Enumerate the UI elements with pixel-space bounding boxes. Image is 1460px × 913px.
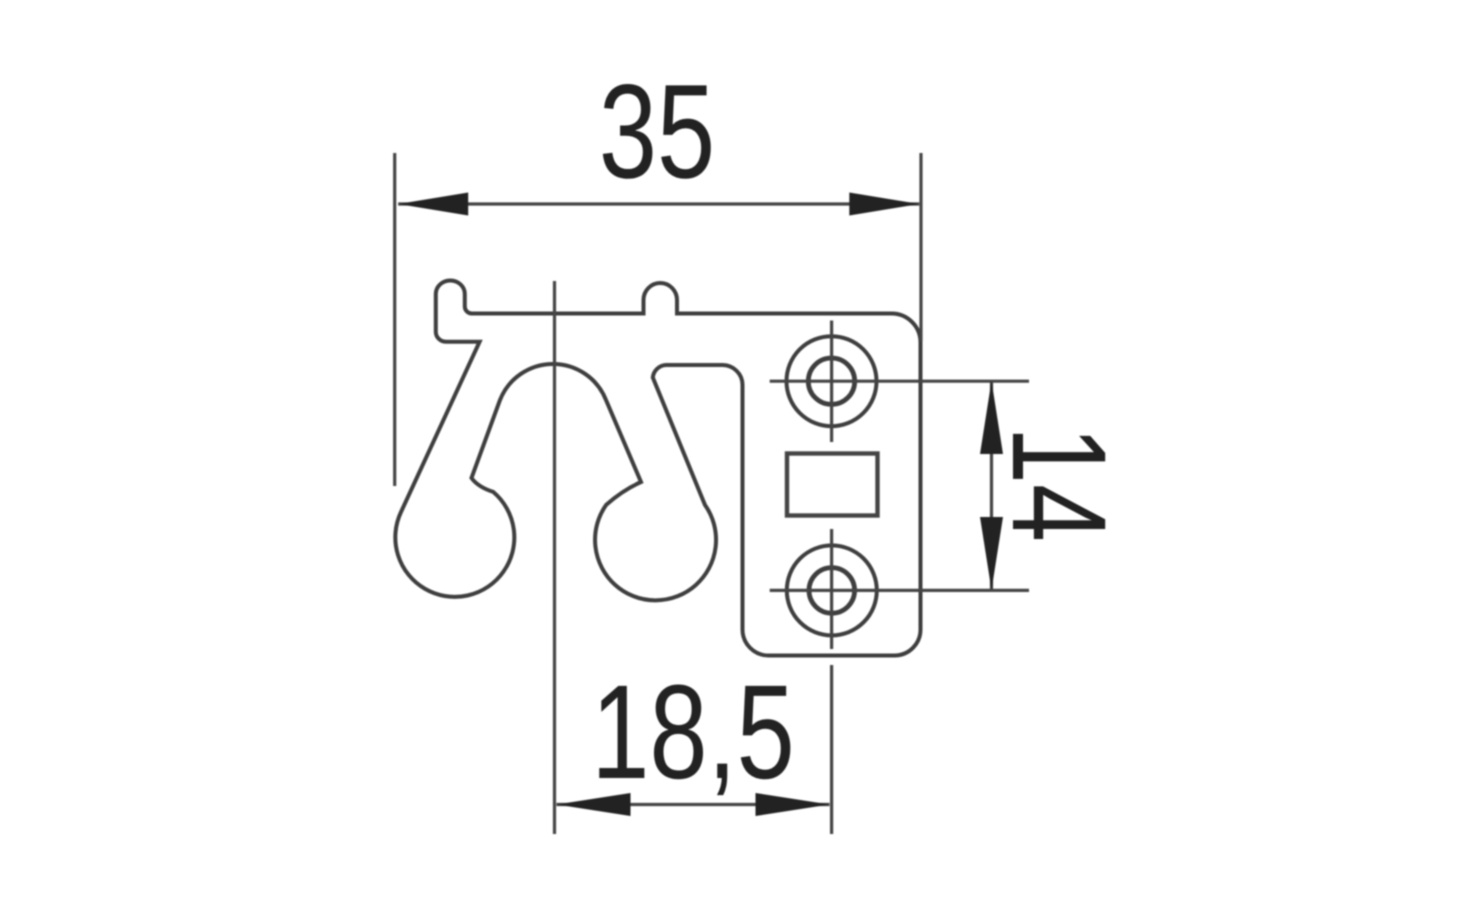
svg-text:35: 35 xyxy=(599,57,715,206)
svg-text:18,5: 18,5 xyxy=(591,658,794,807)
svg-text:14: 14 xyxy=(984,426,1133,542)
